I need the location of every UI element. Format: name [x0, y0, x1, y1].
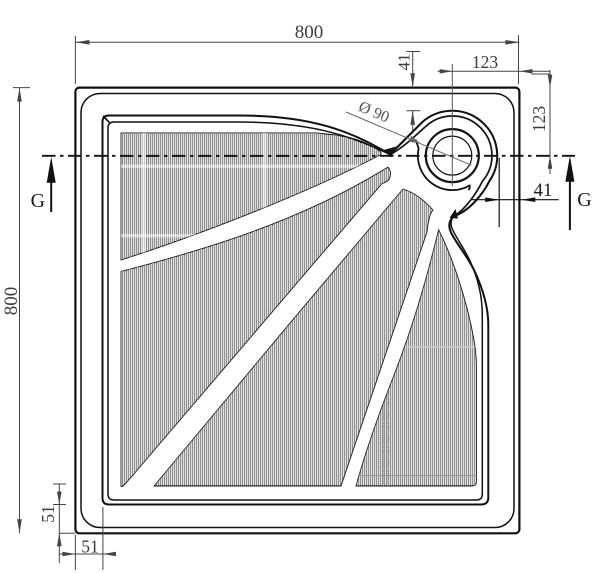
svg-text:123: 123	[472, 52, 499, 72]
svg-text:41: 41	[534, 180, 553, 201]
svg-text:800: 800	[295, 22, 324, 43]
svg-text:G: G	[577, 189, 591, 211]
svg-text:41: 41	[395, 54, 414, 71]
svg-text:123: 123	[529, 106, 549, 133]
svg-text:51: 51	[38, 505, 58, 523]
svg-text:G: G	[31, 190, 45, 212]
svg-text:51: 51	[81, 537, 99, 557]
svg-text:800: 800	[1, 287, 22, 316]
